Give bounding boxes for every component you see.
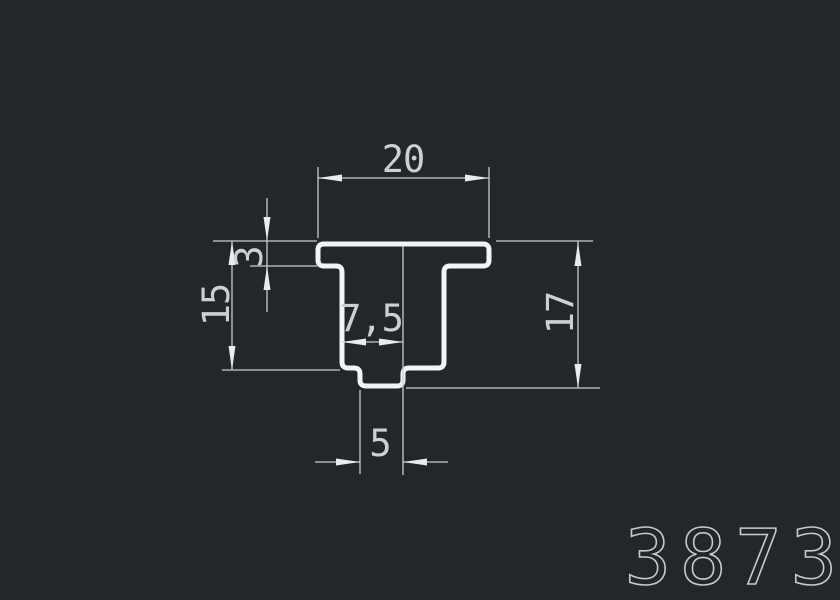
arrow-3-bottom (264, 266, 271, 290)
dim-3-label: 3 (228, 246, 271, 267)
arrow-17-top (575, 242, 582, 266)
arrow-3-top (264, 217, 271, 241)
profile-drawing: 20 3 15 7,5 17 5 3873 (0, 0, 840, 600)
dimension-labels: 20 3 15 7,5 17 5 (195, 138, 582, 465)
arrow-5-right (403, 459, 427, 466)
dim-15-label: 15 (195, 284, 238, 327)
dim-20-label: 20 (382, 138, 425, 181)
dim-17-label: 17 (539, 292, 582, 335)
arrow-20-right (465, 175, 489, 182)
arrow-15-bottom (229, 346, 236, 370)
cad-drawing-canvas: 20 3 15 7,5 17 5 3873 (0, 0, 840, 600)
arrow-17-bottom (575, 364, 582, 388)
dimension-arrows (229, 175, 582, 466)
dim-75-label: 7,5 (339, 297, 403, 340)
dim-5-label: 5 (369, 422, 390, 465)
drawing-number: 3873 (625, 514, 840, 600)
arrow-20-left (318, 175, 342, 182)
arrow-5-left (336, 459, 360, 466)
